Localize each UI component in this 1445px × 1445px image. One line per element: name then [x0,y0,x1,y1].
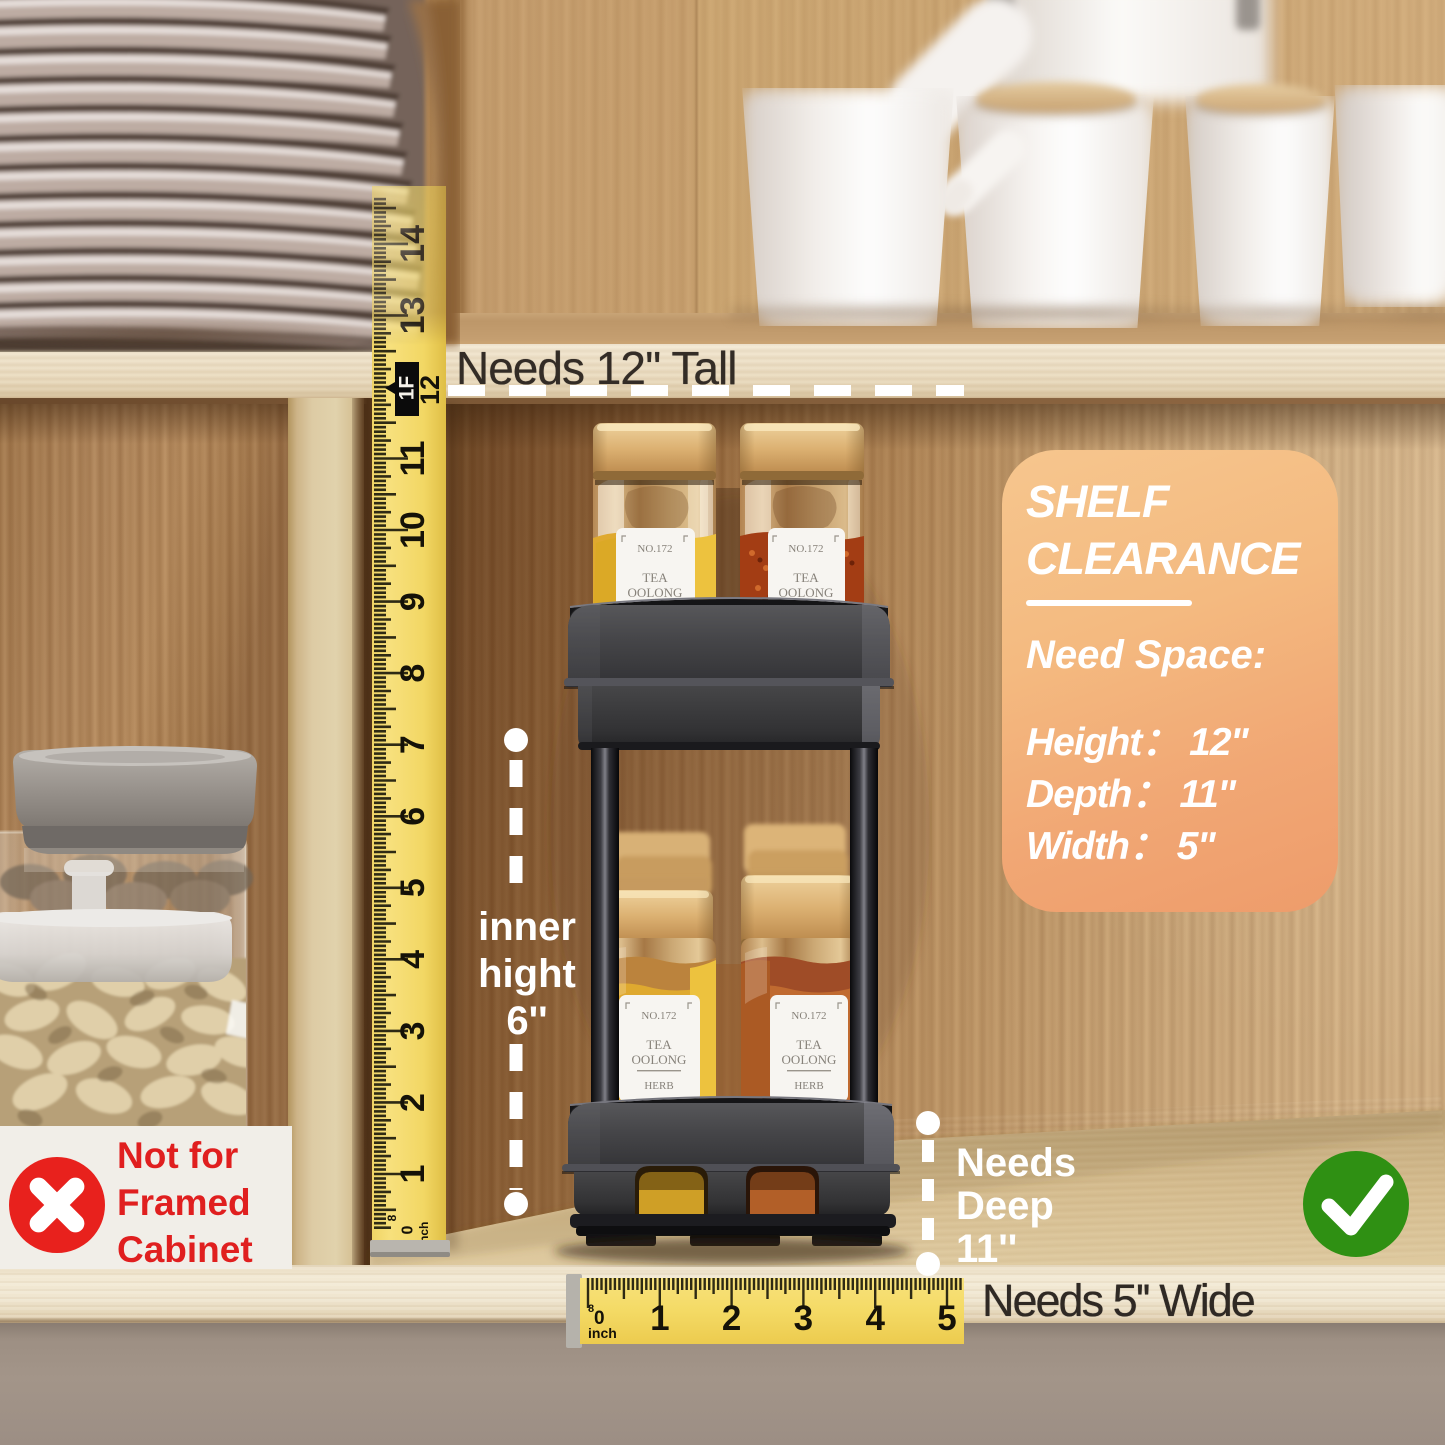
svg-text:OOLONG: OOLONG [632,1052,687,1067]
svg-text:NO.172: NO.172 [637,543,672,555]
svg-text:0: 0 [400,1225,417,1234]
svg-text:5: 5 [937,1299,956,1338]
svg-text:10: 10 [394,511,432,549]
svg-text:2: 2 [722,1299,741,1338]
svg-text:NO.172: NO.172 [788,543,823,555]
svg-text:5: 5 [394,878,432,897]
svg-text:NO.172: NO.172 [791,1010,826,1022]
svg-text:11: 11 [394,441,432,477]
svg-text:NO.172: NO.172 [641,1010,676,1022]
svg-text:12: 12 [415,375,445,405]
svg-text:8: 8 [588,1303,594,1315]
svg-text:HERB: HERB [794,1080,823,1092]
svg-text:TEA: TEA [796,1037,822,1052]
svg-text:TEA: TEA [646,1037,672,1052]
svg-text:TEA: TEA [793,570,819,585]
svg-text:9: 9 [394,592,432,611]
svg-text:3: 3 [394,1021,432,1040]
svg-text:1: 1 [650,1299,669,1338]
svg-text:8: 8 [385,1214,399,1221]
svg-text:inch: inch [588,1325,617,1341]
svg-text:OOLONG: OOLONG [782,1052,837,1067]
svg-text:13: 13 [394,296,432,334]
svg-text:7: 7 [394,735,432,754]
svg-text:HERB: HERB [644,1080,673,1092]
svg-text:6: 6 [394,807,432,826]
svg-text:1: 1 [394,1165,432,1184]
svg-text:14: 14 [394,225,432,263]
svg-text:2: 2 [394,1093,432,1112]
svg-text:TEA: TEA [642,570,668,585]
svg-text:3: 3 [794,1299,813,1338]
svg-text:OOLONG: OOLONG [628,585,683,600]
svg-text:4: 4 [394,950,432,969]
svg-text:4: 4 [865,1299,885,1338]
svg-text:8: 8 [394,664,432,683]
